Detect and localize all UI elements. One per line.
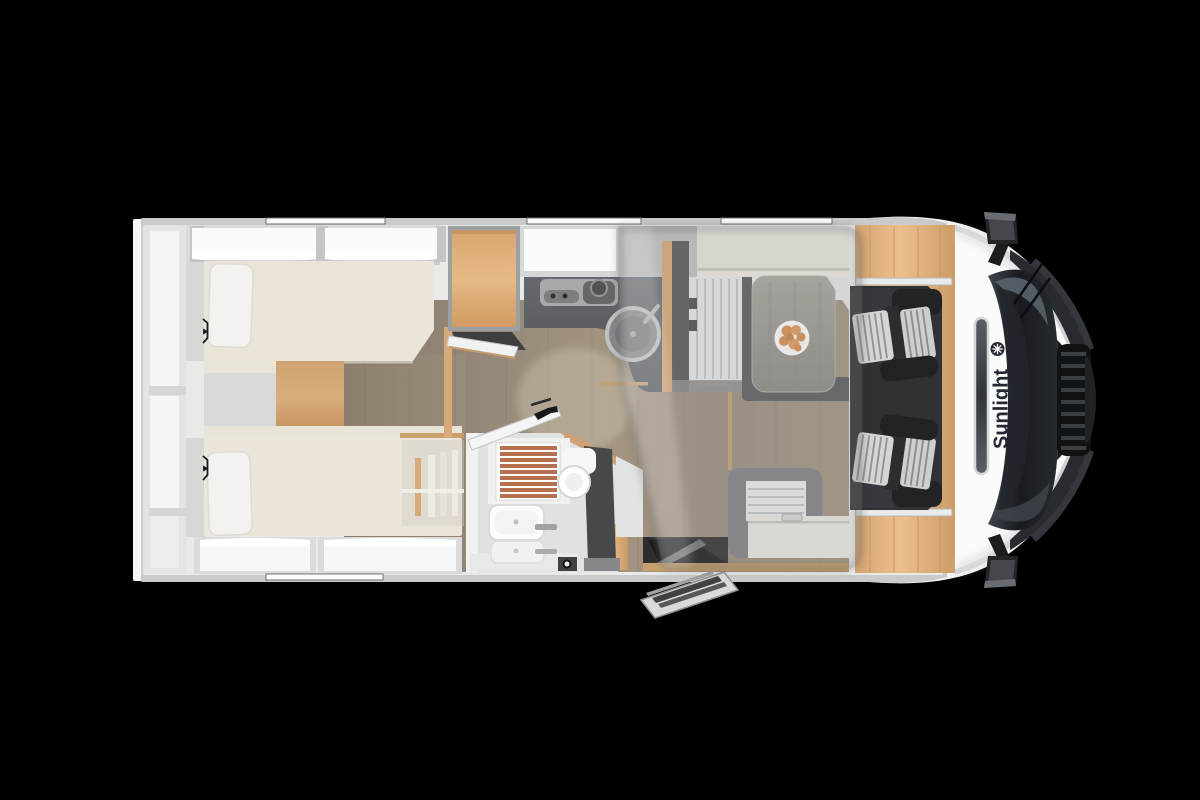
svg-text:Sunlight: Sunlight <box>991 369 1013 449</box>
